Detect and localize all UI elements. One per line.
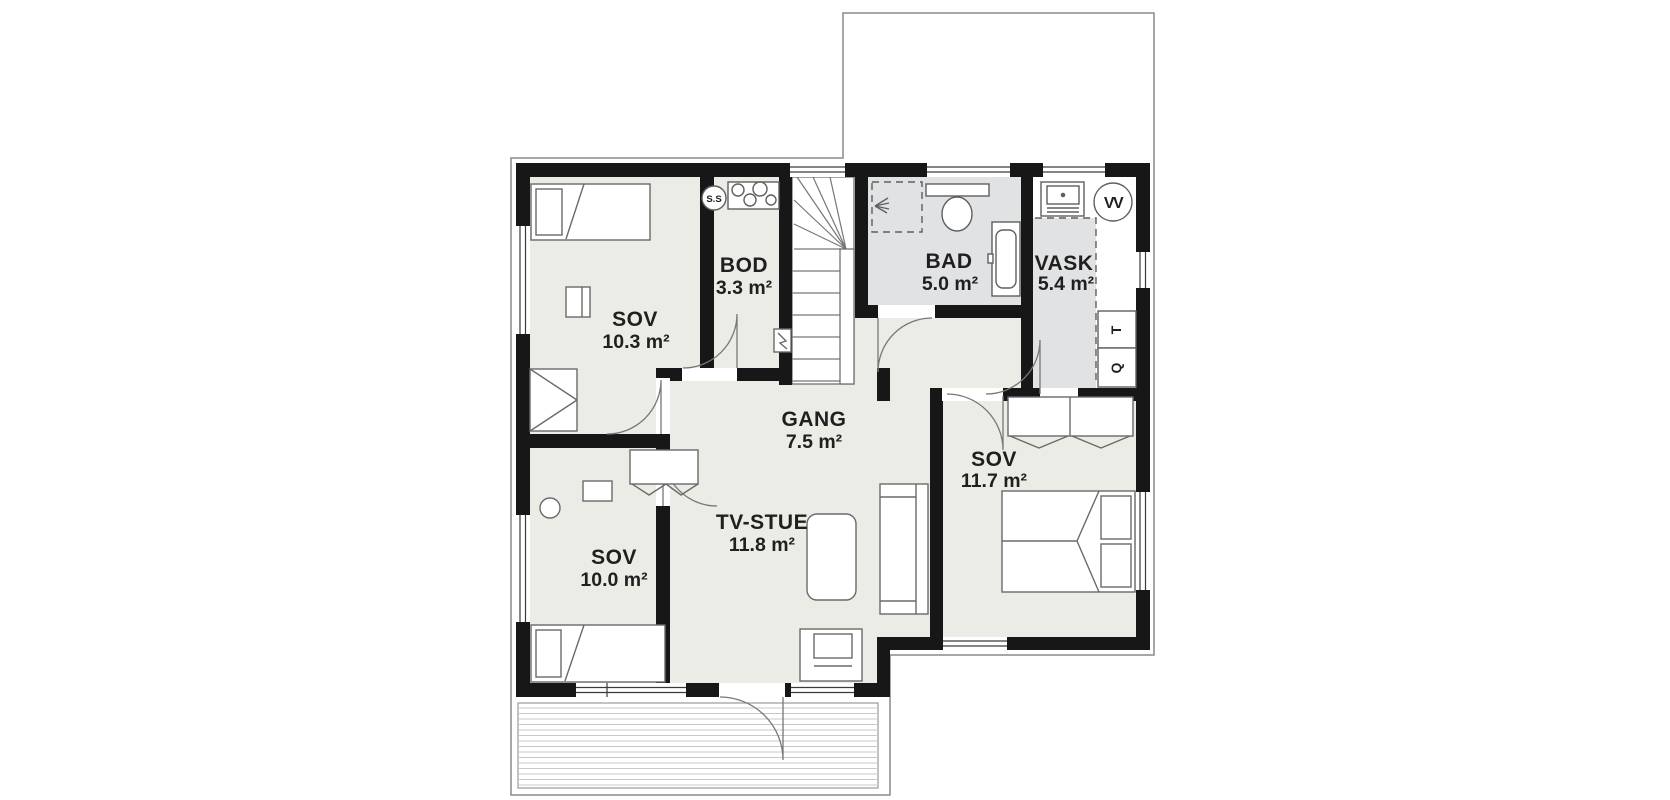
staircase	[792, 177, 854, 384]
floor-plan-page: SOV 10.3 m² BOD 3.3 m² BAD 5.0 m² VASK 5…	[0, 0, 1670, 800]
floor-plan: SOV 10.3 m² BOD 3.3 m² BAD 5.0 m² VASK 5…	[0, 0, 1670, 800]
stair-rail	[840, 249, 854, 384]
fuse-box-label: S.S	[706, 194, 721, 205]
desk-sov-10-3	[566, 287, 590, 317]
label-tv-stue: TV-STUE	[716, 511, 808, 534]
bathroom-vanity	[988, 222, 1020, 296]
wardrobe-sov-10-3	[530, 369, 577, 431]
bed-sov-11-7	[1002, 491, 1135, 592]
bed-sov-10-3	[531, 184, 650, 240]
coffee-table-tv-stue	[807, 514, 856, 600]
area-tv-stue: 11.8 m²	[729, 534, 796, 556]
label-sov-11-7: SOV	[971, 448, 1017, 471]
bed-sov-10-0	[531, 625, 665, 682]
label-sov-10-0: SOV	[591, 546, 637, 569]
tv-bench-tv-stue	[800, 629, 862, 681]
sofa-tv-stue	[880, 484, 928, 614]
laundry-floor	[1033, 218, 1096, 388]
toilet-cistern	[926, 184, 989, 196]
side-table-sov-10-0	[583, 481, 612, 501]
area-bad: 5.0 m²	[922, 273, 979, 295]
stool-sov-10-0	[540, 498, 560, 518]
area-sov-10-0: 10.0 m²	[580, 569, 648, 591]
electrical-box	[774, 329, 791, 352]
label-gang: GANG	[782, 408, 847, 431]
label-bod: BOD	[720, 254, 768, 277]
laundry-sink	[1041, 182, 1084, 216]
area-vask: 5.4 m²	[1038, 273, 1095, 295]
washer-label: Q	[1108, 362, 1124, 373]
label-bad: BAD	[926, 250, 973, 273]
dryer-label: T	[1108, 325, 1124, 334]
area-bod: 3.3 m²	[716, 277, 773, 299]
toilet-bowl	[942, 197, 972, 231]
label-sov-10-3: SOV	[612, 308, 658, 331]
area-gang: 7.5 m²	[786, 431, 843, 453]
terrace-deck	[518, 703, 878, 788]
water-heater-label: VV	[1104, 195, 1124, 212]
area-sov-10-3: 10.3 m²	[602, 331, 670, 353]
label-vask: VASK	[1035, 252, 1094, 275]
area-sov-11-7: 11.7 m²	[961, 470, 1028, 492]
